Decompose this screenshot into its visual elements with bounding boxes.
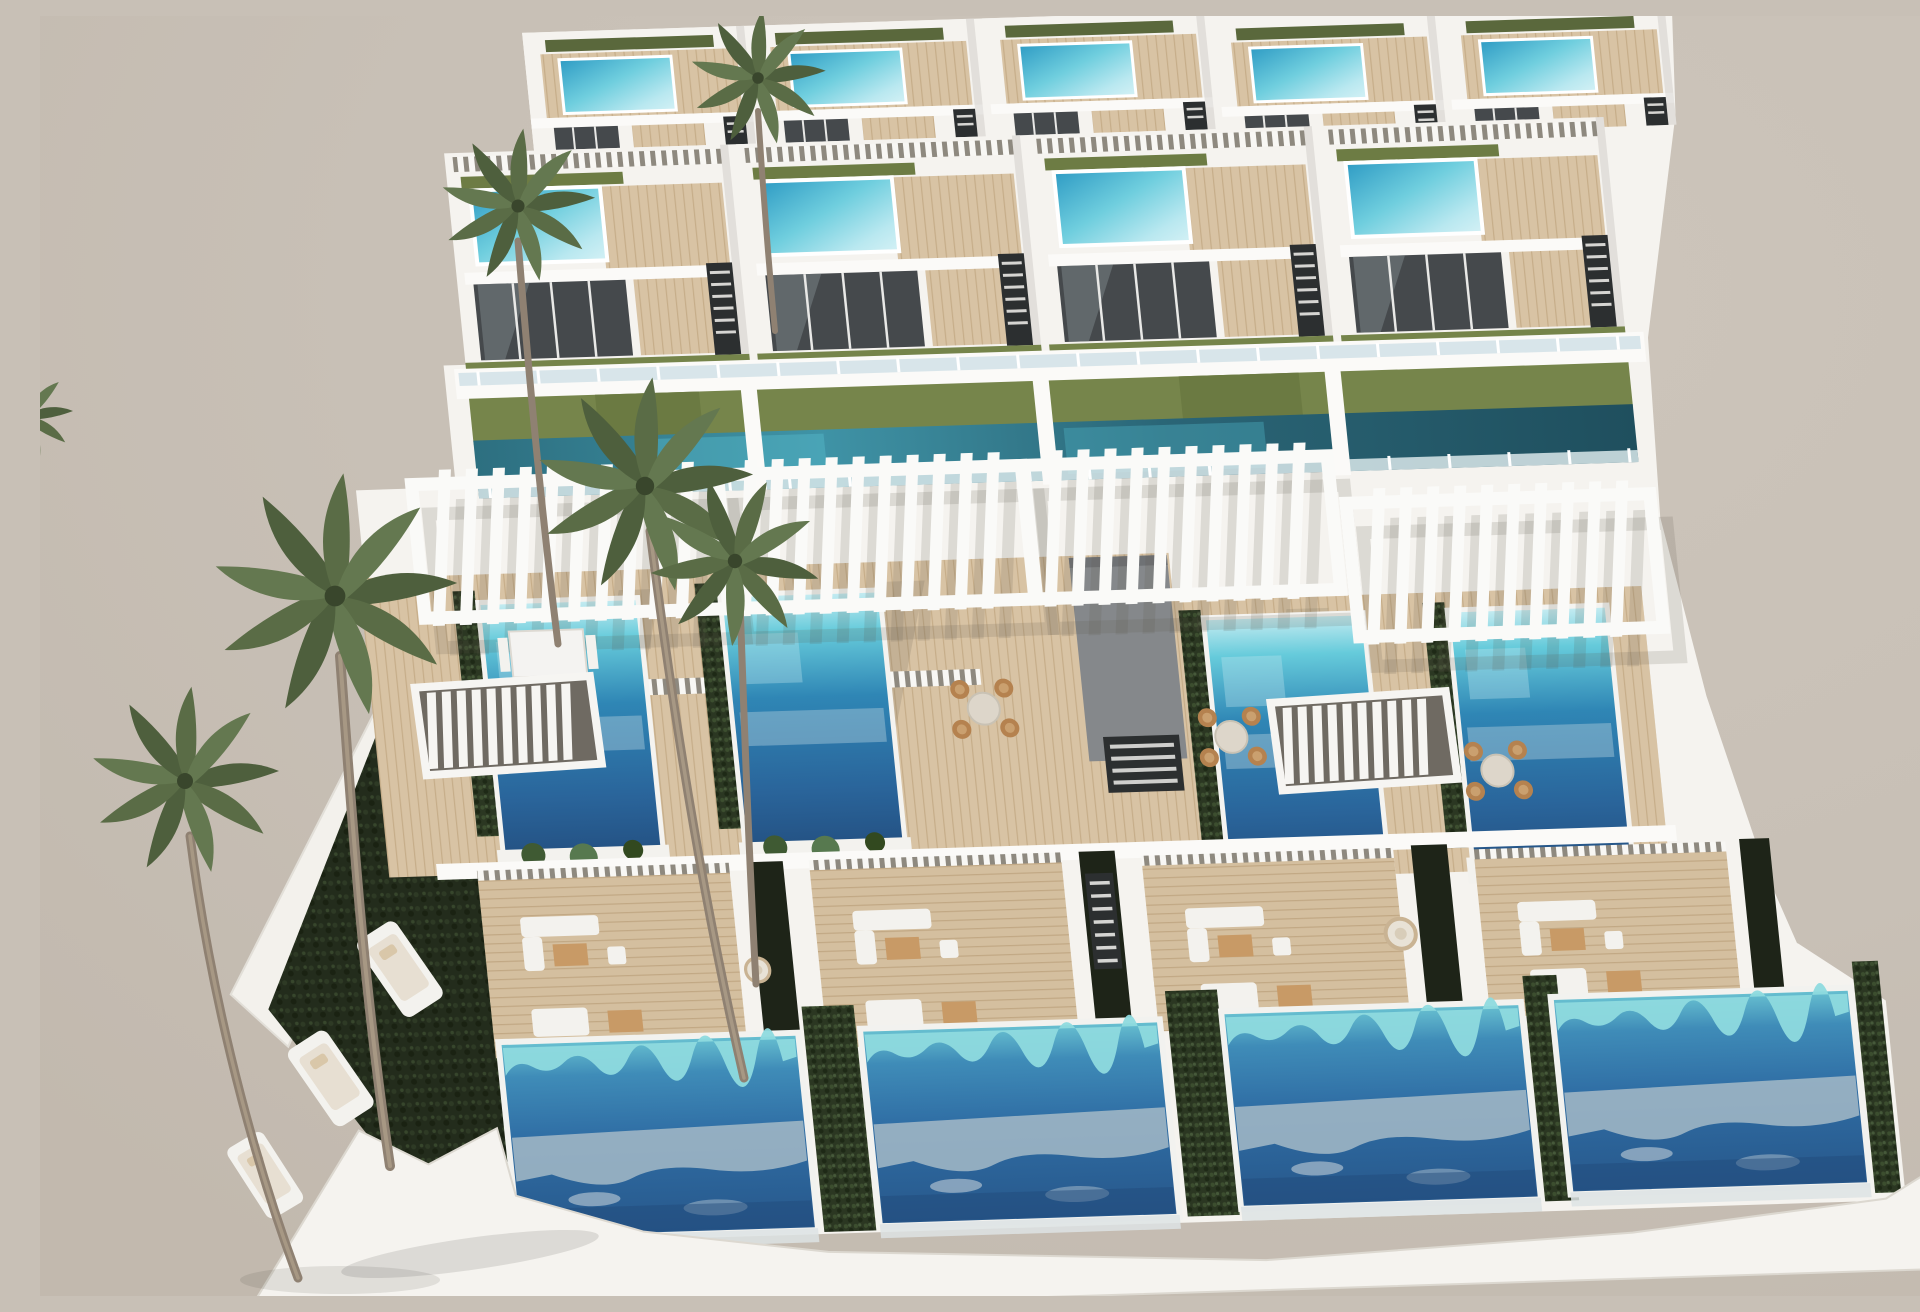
render-canvas xyxy=(40,16,1920,1296)
ground-pool xyxy=(1221,996,1541,1208)
slat-balcony xyxy=(415,676,602,775)
ground-pool xyxy=(1550,982,1870,1194)
architectural-render: Aerial three-quarter 3D rendering of a m… xyxy=(40,16,1920,1296)
ground-pool xyxy=(859,1014,1179,1226)
hanging-chair xyxy=(1384,918,1417,949)
palm-shadow xyxy=(240,1266,440,1294)
slat-balcony xyxy=(1270,691,1457,790)
